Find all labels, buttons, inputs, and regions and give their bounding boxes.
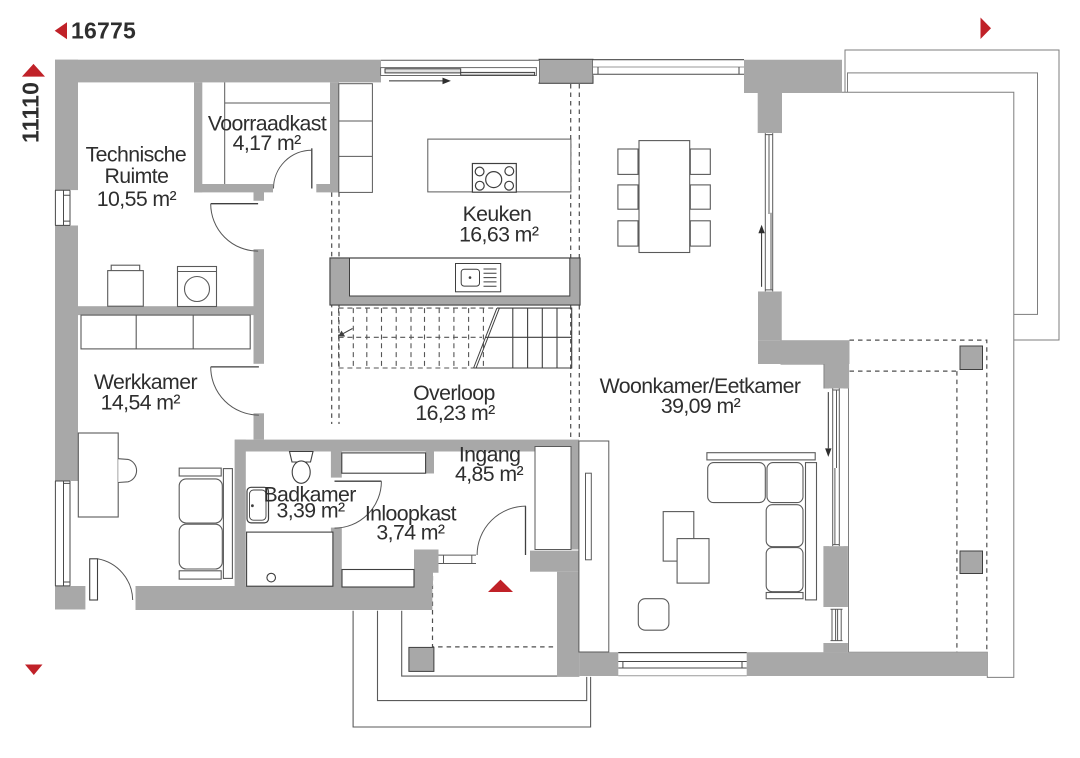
- svg-text:39,09 m²: 39,09 m²: [661, 394, 741, 418]
- svg-text:16,63 m²: 16,63 m²: [459, 222, 539, 246]
- svg-text:3,74 m²: 3,74 m²: [376, 521, 445, 545]
- svg-text:3,39 m²: 3,39 m²: [277, 498, 346, 522]
- svg-text:10,55 m²: 10,55 m²: [97, 187, 177, 211]
- svg-text:16775: 16775: [71, 18, 136, 44]
- svg-text:4,17 m²: 4,17 m²: [233, 131, 302, 155]
- svg-text:14,54 m²: 14,54 m²: [101, 391, 181, 415]
- svg-text:4,85 m²: 4,85 m²: [455, 462, 524, 486]
- svg-text:Ruimte: Ruimte: [104, 164, 168, 188]
- svg-text:11110: 11110: [18, 82, 44, 143]
- svg-text:16,23 m²: 16,23 m²: [415, 401, 495, 425]
